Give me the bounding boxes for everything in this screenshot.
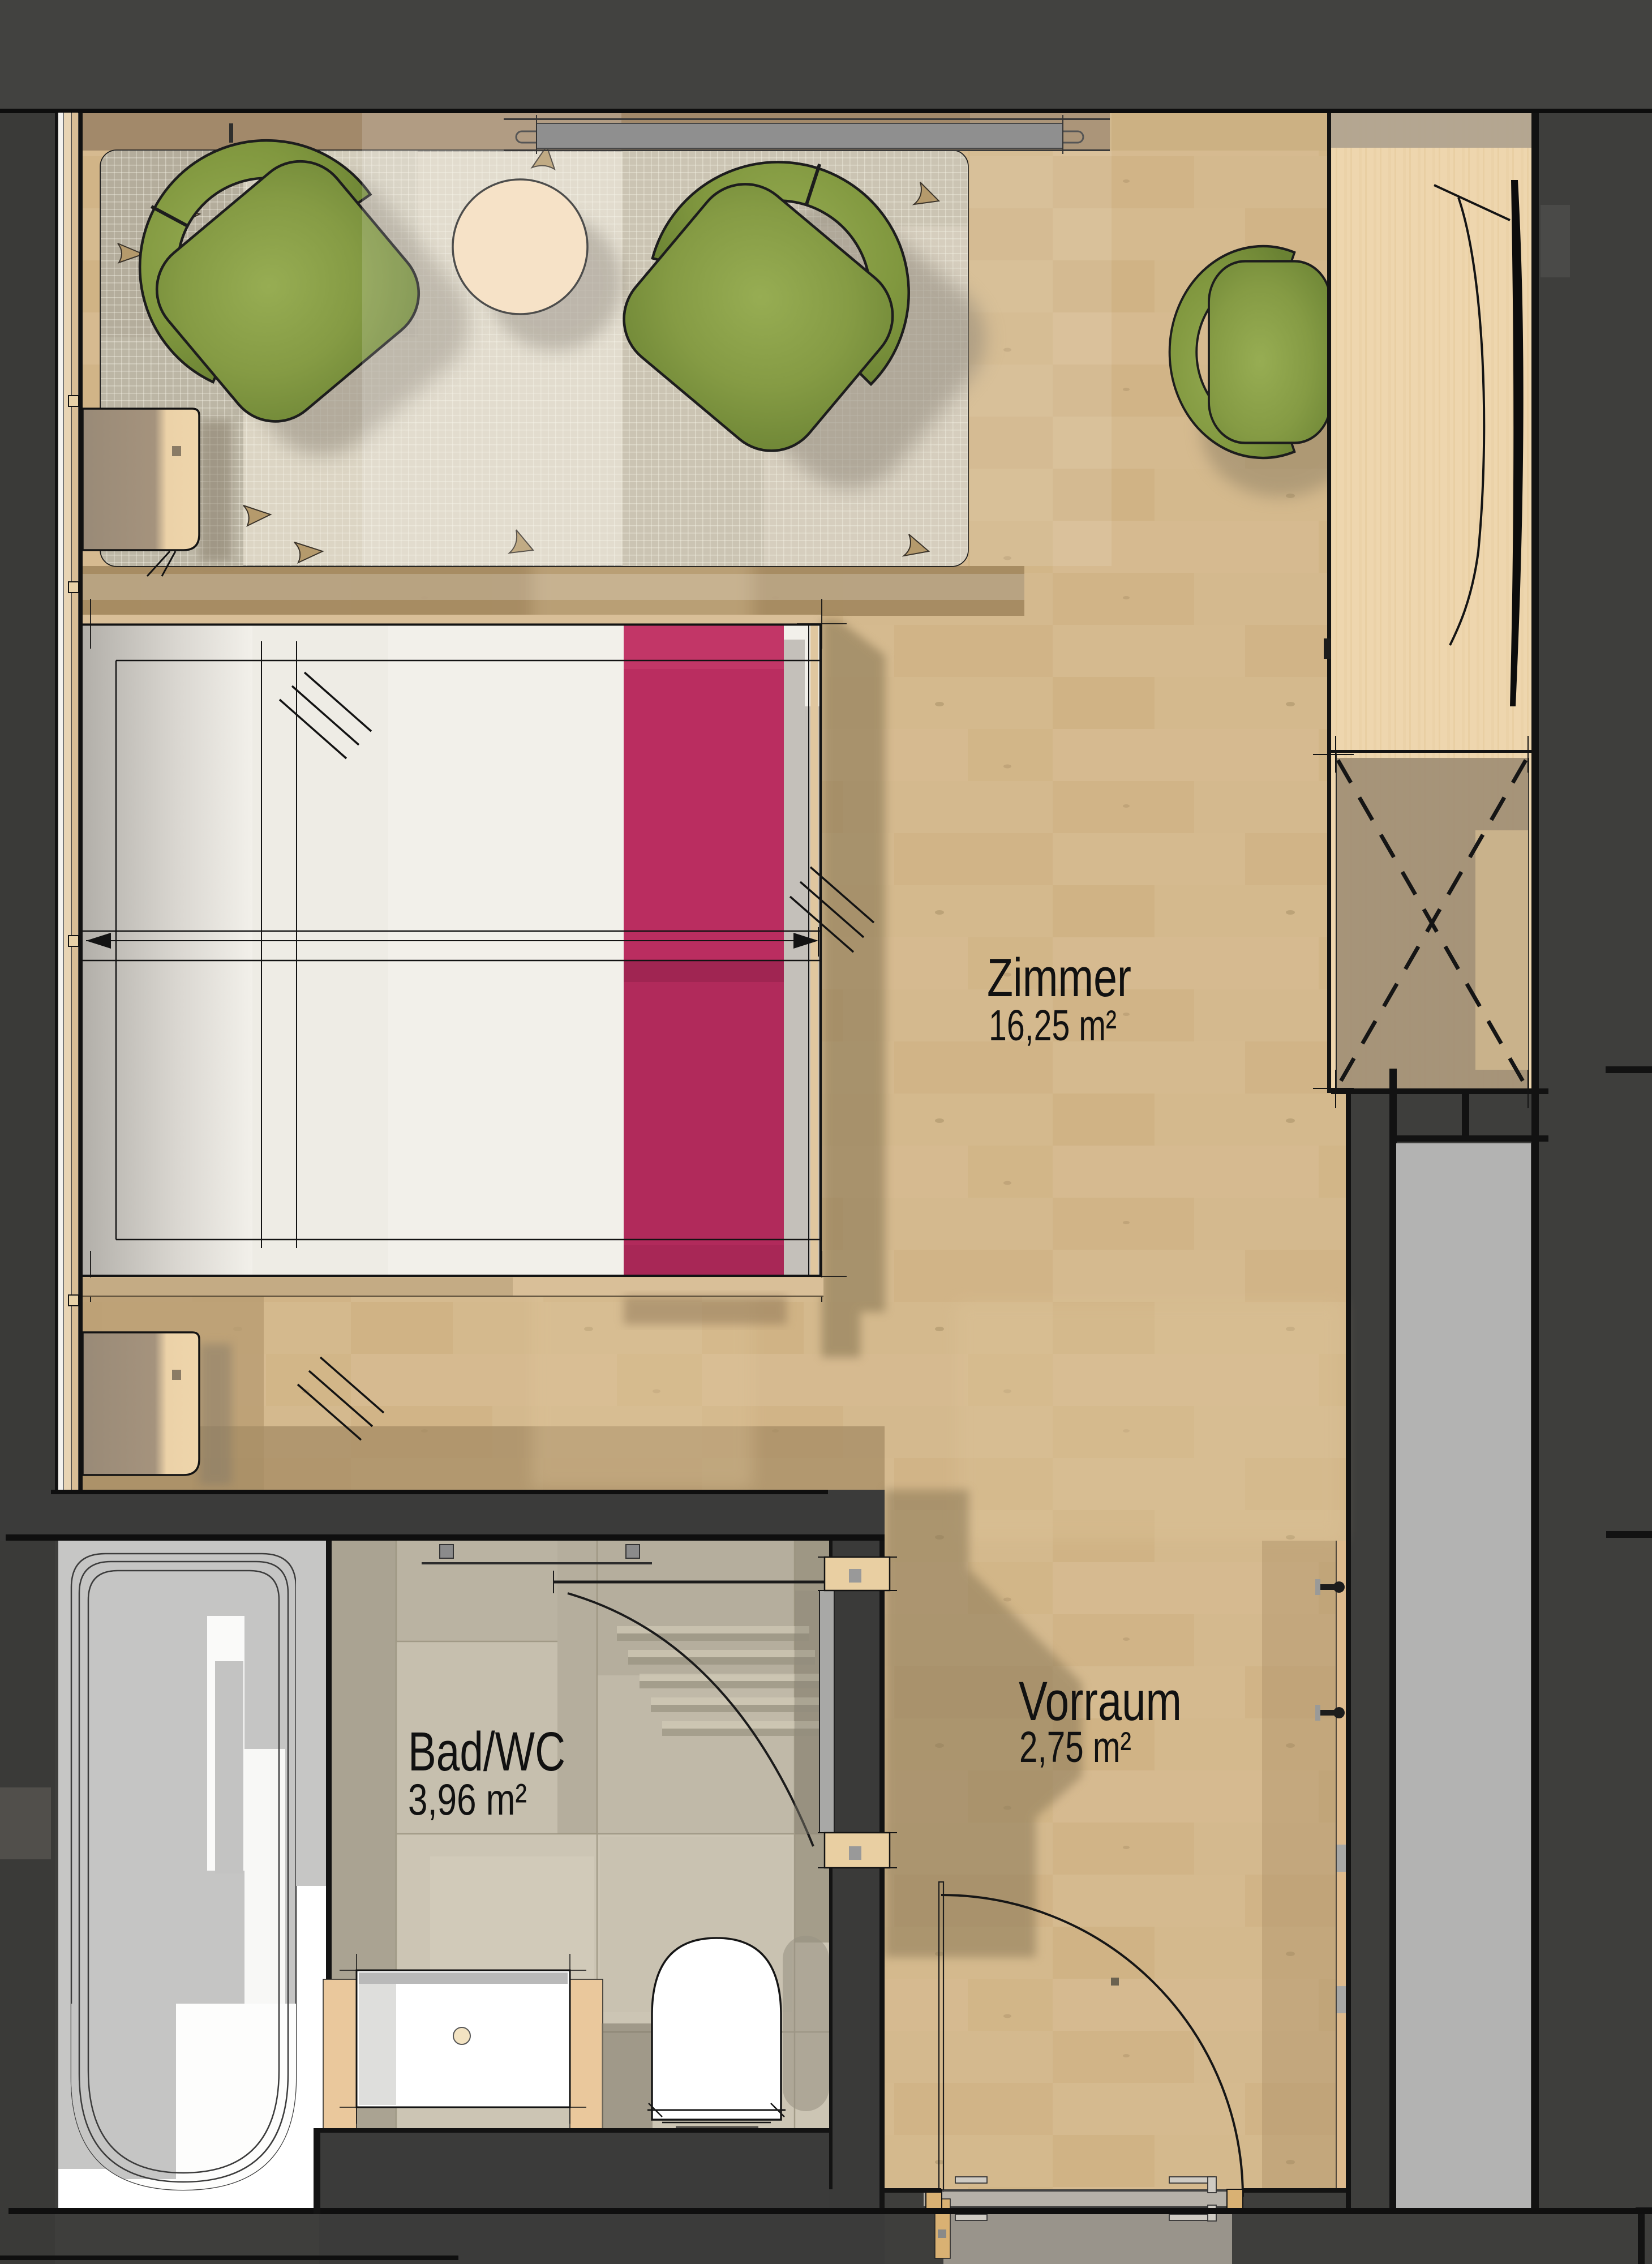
svg-text:Zimmer: Zimmer bbox=[987, 947, 1131, 1008]
svg-text:2,75 m²: 2,75 m² bbox=[1019, 1723, 1131, 1772]
svg-text:Bad/WC: Bad/WC bbox=[408, 1721, 565, 1782]
svg-text:16,25 m²: 16,25 m² bbox=[989, 1001, 1117, 1050]
svg-text:3,96 m²: 3,96 m² bbox=[408, 1774, 527, 1824]
